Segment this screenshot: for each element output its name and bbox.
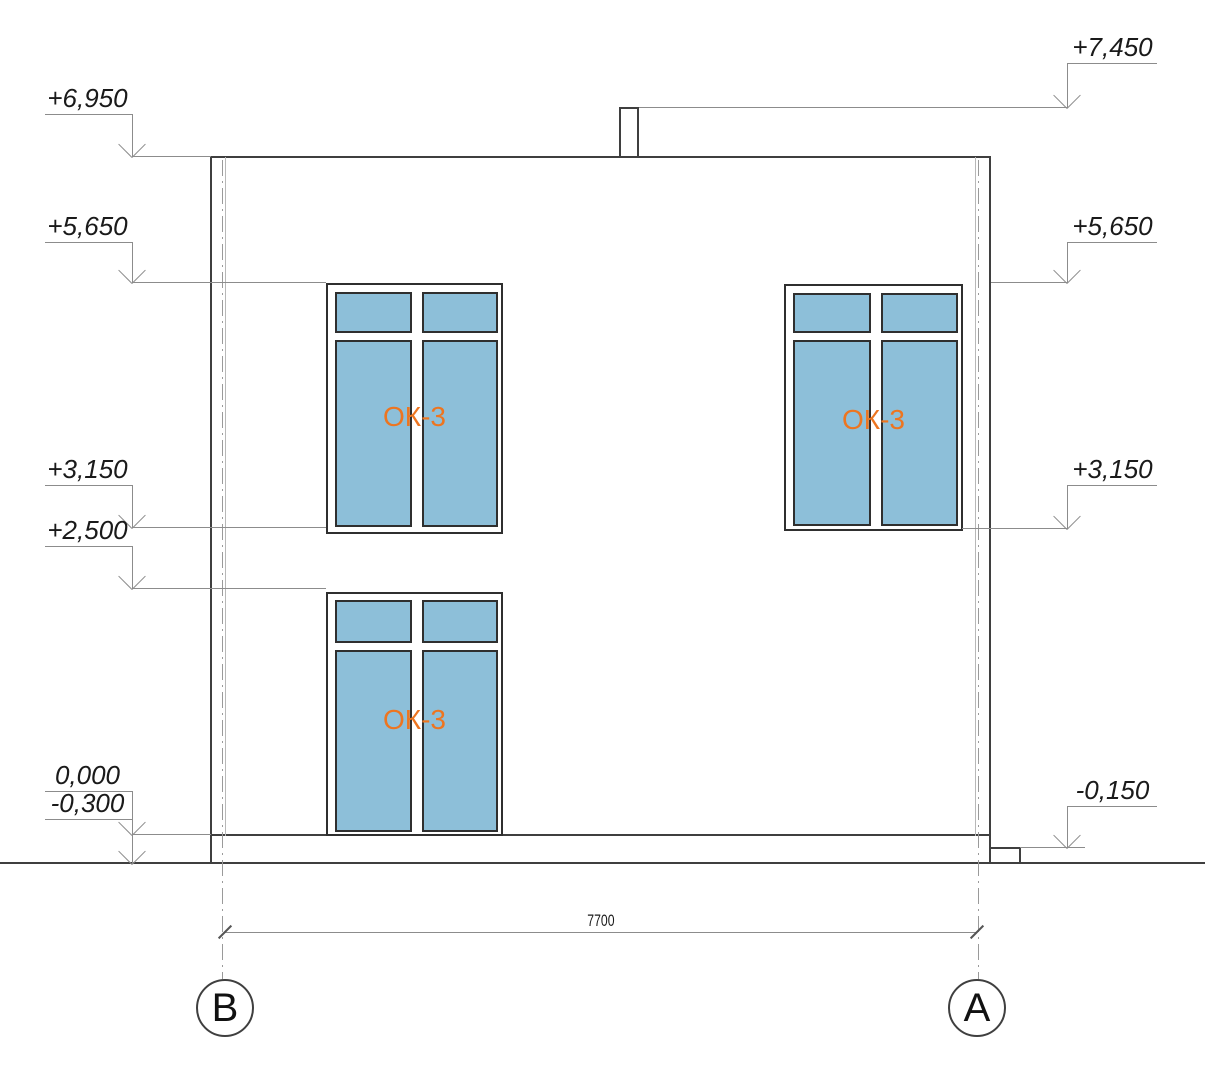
window-pane bbox=[881, 293, 958, 333]
elevation-value: +7,450 bbox=[1068, 33, 1157, 61]
dimension-value: 7700 bbox=[551, 911, 651, 931]
mark-leader bbox=[639, 107, 1067, 108]
axis-bubble-A: А bbox=[948, 979, 1006, 1037]
mark-leader bbox=[133, 156, 211, 157]
mark-drop-line bbox=[132, 819, 133, 864]
window-pane bbox=[422, 340, 498, 527]
left-wall-base bbox=[210, 836, 212, 863]
elevation-value: +2,500 bbox=[42, 516, 133, 544]
window-pane bbox=[335, 340, 412, 527]
mark-leader bbox=[133, 834, 211, 835]
mark-leader bbox=[133, 527, 326, 528]
mark-underline bbox=[45, 819, 133, 820]
mark-leader bbox=[962, 528, 1067, 529]
mark-drop-line bbox=[1067, 806, 1068, 848]
right-wall-inner-line bbox=[975, 157, 976, 836]
window-pane bbox=[422, 600, 498, 643]
mark-drop-line bbox=[1067, 63, 1068, 108]
elevation-drawing: ОК-3 ОК-3 ОК-3 +6,950 +5,650 +3,150 bbox=[0, 0, 1223, 1080]
mark-leader bbox=[1020, 847, 1085, 848]
mark-underline bbox=[45, 485, 133, 486]
mark-underline bbox=[45, 242, 133, 243]
elevation-value: +5,650 bbox=[42, 212, 133, 240]
window-pane bbox=[335, 600, 412, 643]
elevation-value: -0,150 bbox=[1068, 776, 1157, 804]
mark-underline bbox=[45, 114, 133, 115]
elevation-value: 0,000 bbox=[42, 761, 133, 789]
mark-drop-line bbox=[132, 114, 133, 157]
window-pane bbox=[422, 292, 498, 333]
window-pane bbox=[793, 293, 871, 333]
axis-bubble-B: В bbox=[196, 979, 254, 1037]
mark-underline bbox=[1068, 63, 1157, 64]
window-lower-left: ОК-3 bbox=[326, 592, 503, 836]
window-pane bbox=[422, 650, 498, 832]
mark-underline bbox=[45, 546, 133, 547]
mark-drop-line bbox=[1067, 485, 1068, 529]
mark-drop-line bbox=[132, 546, 133, 589]
window-upper-right: ОК-3 bbox=[784, 284, 963, 531]
elevation-value: +6,950 bbox=[42, 84, 133, 112]
mark-drop-line bbox=[132, 242, 133, 283]
mark-leader bbox=[991, 282, 1067, 283]
window-tag: ОК-3 bbox=[786, 404, 961, 436]
window-pane bbox=[335, 650, 412, 832]
elevation-value: -0,300 bbox=[42, 789, 133, 817]
window-tag: ОК-3 bbox=[328, 704, 501, 736]
window-pane bbox=[335, 292, 412, 333]
axis-label-A: А bbox=[950, 981, 1004, 1035]
window-upper-left: ОК-3 bbox=[326, 283, 503, 534]
mark-leader bbox=[133, 282, 326, 283]
mark-drop-line bbox=[1067, 242, 1068, 283]
axis-line-A bbox=[978, 160, 979, 979]
mark-underline bbox=[1068, 806, 1157, 807]
mark-underline bbox=[1068, 242, 1157, 243]
plinth-step bbox=[991, 847, 1021, 863]
elevation-value: +3,150 bbox=[42, 455, 133, 483]
axis-label-B: В bbox=[198, 981, 252, 1035]
elevation-value: +3,150 bbox=[1068, 455, 1157, 483]
mark-underline bbox=[1068, 485, 1157, 486]
chimney bbox=[619, 107, 639, 158]
window-tag: ОК-3 bbox=[328, 401, 501, 433]
elevation-value: +5,650 bbox=[1068, 212, 1157, 240]
left-wall-inner-line bbox=[225, 157, 226, 836]
ground-line bbox=[0, 862, 1205, 864]
dimension-line bbox=[225, 932, 977, 933]
mark-leader bbox=[133, 588, 326, 589]
